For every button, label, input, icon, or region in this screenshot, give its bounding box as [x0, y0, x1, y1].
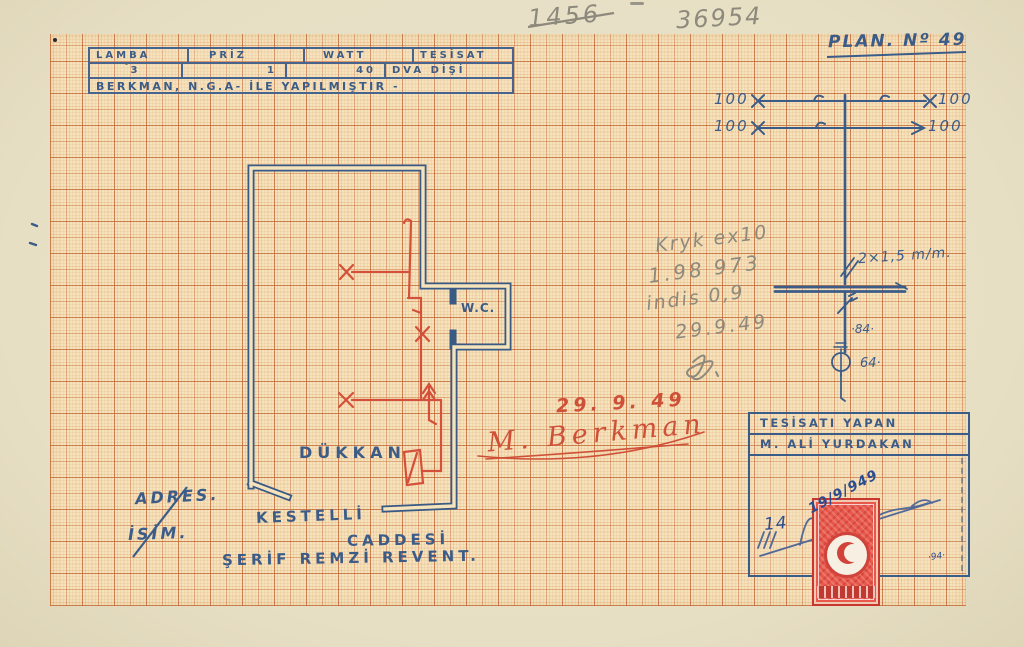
value-tesisat: DVA DİŞİ: [386, 64, 512, 77]
stamp-side-note: ·94·: [927, 551, 945, 563]
stamp-value-band: [817, 586, 875, 598]
room-label-dukkan: DÜKKAN: [299, 443, 406, 462]
plan-number: PLAN. Nº 49: [828, 30, 967, 52]
installer-stamp-area: 19/9/949 14 ·94·: [750, 456, 968, 573]
value-priz: 1: [183, 64, 287, 77]
riser-label-100-bottom-left: 100: [714, 117, 749, 135]
table-note: BERKMAN, N.G.A- İLE YAPILMIŞTIR -: [90, 79, 512, 94]
street-name-line1: KESTELLİ: [256, 505, 366, 527]
pencil-reference-number: 36954: [675, 2, 763, 34]
revenue-stamp: [812, 498, 880, 606]
margin-ink-dots: [30, 224, 37, 245]
crescent-icon: [837, 542, 859, 564]
header-priz: PRİZ: [189, 49, 305, 62]
pencil-monogram: [687, 355, 718, 379]
installer-box: TESİSATI YAPAN M. ALİ YURDAKAN 19/9/949 …: [748, 412, 970, 577]
value-lamba: 3: [90, 64, 183, 77]
installer-title: TESİSATI YAPAN: [750, 414, 968, 435]
riser-label-100-top-left: 100: [714, 90, 749, 108]
header-watt: WATT: [305, 49, 414, 62]
lamp-rating-label: 64·: [860, 356, 881, 371]
room-label-wc: W.C.: [461, 301, 495, 315]
header-tesisat: TESİSAT: [414, 49, 512, 62]
header-lamba: LAMBA: [90, 49, 189, 62]
spec-table-note-row: BERKMAN, N.G.A- İLE YAPILMIŞTIR -: [90, 79, 512, 92]
name-label: İSİM.: [128, 523, 189, 544]
installer-name: M. ALİ YURDAKAN: [750, 435, 968, 456]
stamp-circle: [824, 532, 870, 578]
scanned-plan-document: 1456 36954 PLAN. Nº 49 LAMBA PRİZ WATT T…: [0, 0, 1024, 647]
riser-label-100-top-right: 100: [938, 90, 973, 108]
spec-table-value-row: 3 1 40 DVA DİŞİ: [90, 64, 512, 79]
riser-label-100-bottom-right: 100: [928, 117, 963, 135]
pencil-crossed-number: 1456: [527, 0, 602, 33]
plan-no-underline: [827, 52, 966, 57]
value-watt: 40: [287, 64, 386, 77]
fee-number: 14: [763, 513, 788, 535]
spec-table-header-row: LAMBA PRİZ WATT TESİSAT: [90, 49, 512, 64]
switch-rating-label: ·84·: [851, 322, 874, 336]
spec-table: LAMBA PRİZ WATT TESİSAT 3 1 40 DVA DİŞİ …: [88, 47, 514, 94]
